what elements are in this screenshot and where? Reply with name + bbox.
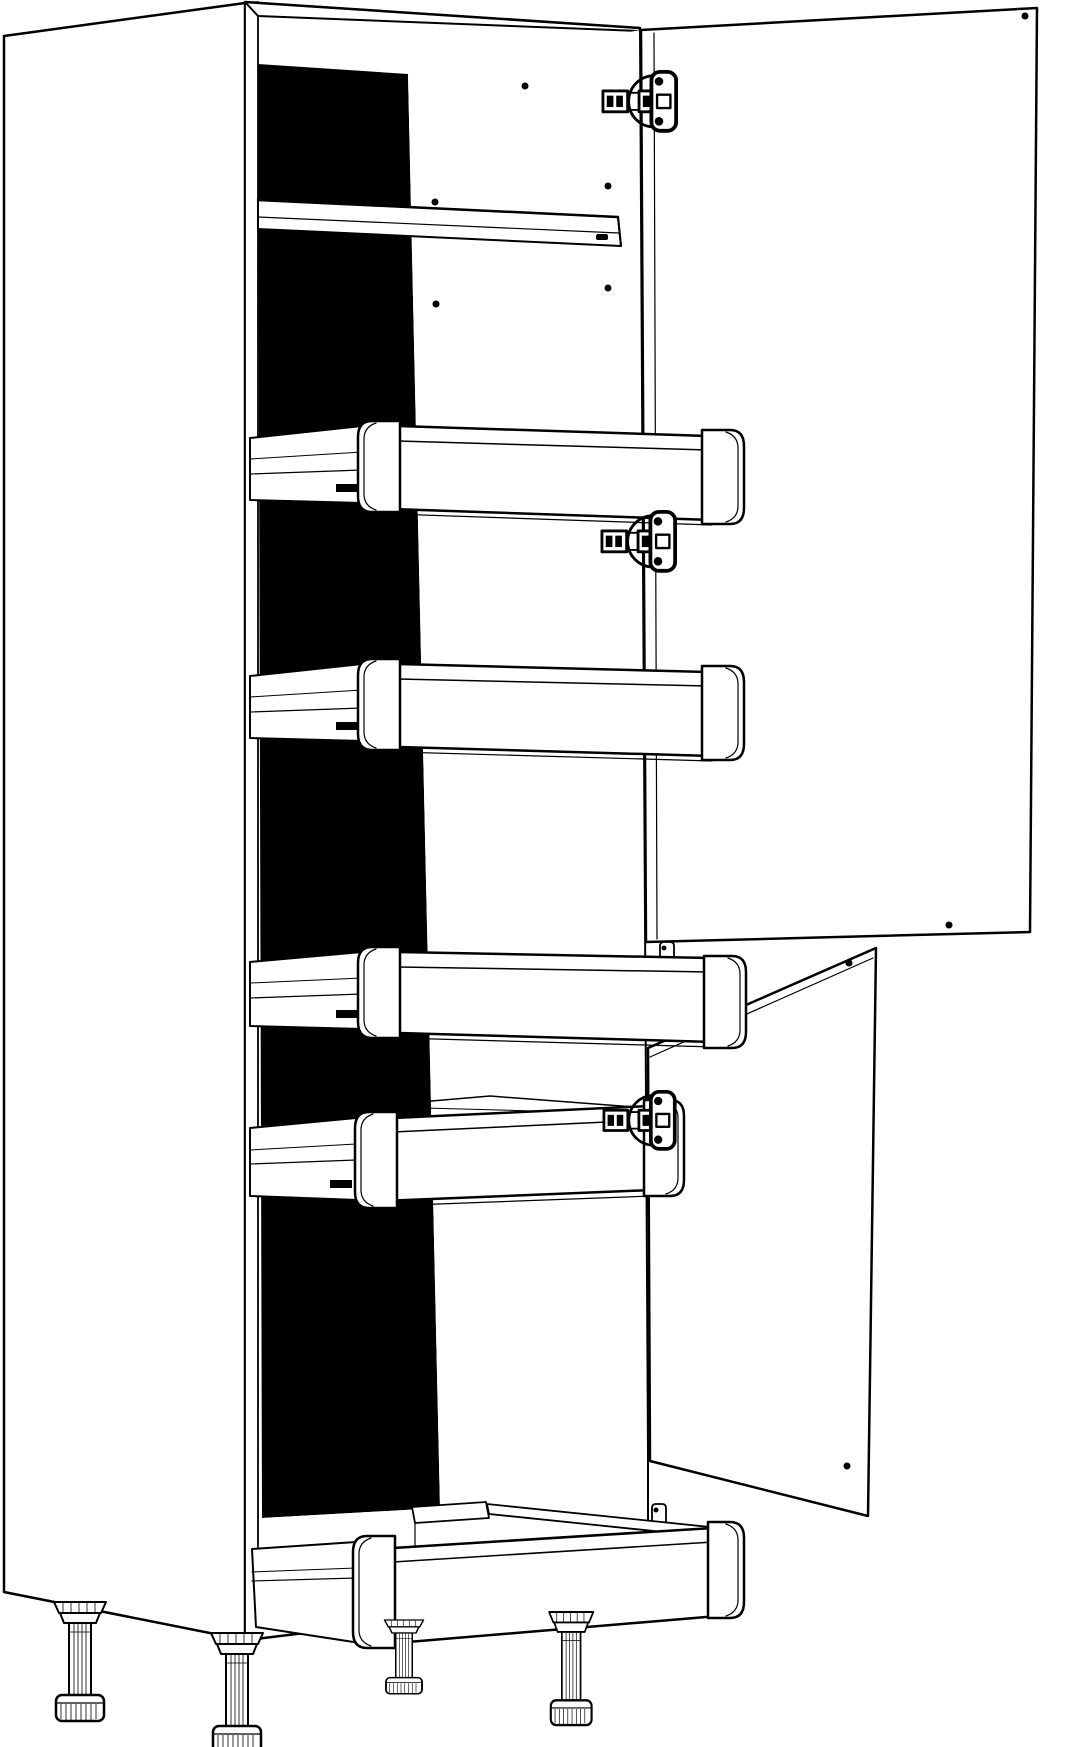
door-screw-hole [946,922,953,929]
door-screw-hole [844,1463,851,1470]
drawer-rear-bracket [660,942,674,958]
pin-hole [433,301,440,308]
drawer-front-rail [364,426,712,520]
drawer-front-rail [364,664,712,756]
right-side-panel-interior [408,30,648,1508]
pin-hole [605,183,612,190]
cabinet-drawing-canvas [0,0,1076,1747]
drawer-front-rail [364,952,714,1042]
runner-latch [336,1010,358,1018]
pin-hole [432,199,439,206]
left-side-panel [4,2,258,1643]
runner-latch [330,1180,352,1188]
pin-hole [522,83,529,90]
pin-hole [605,285,612,292]
runner-latch [336,484,358,492]
door-screw-hole [846,960,853,967]
drawer-side [252,1542,360,1643]
door-screw-hole [1022,13,1029,20]
runner-latch [336,722,358,730]
shelf-support-pin [596,234,608,240]
cabinet-line-drawing [0,0,1076,1747]
